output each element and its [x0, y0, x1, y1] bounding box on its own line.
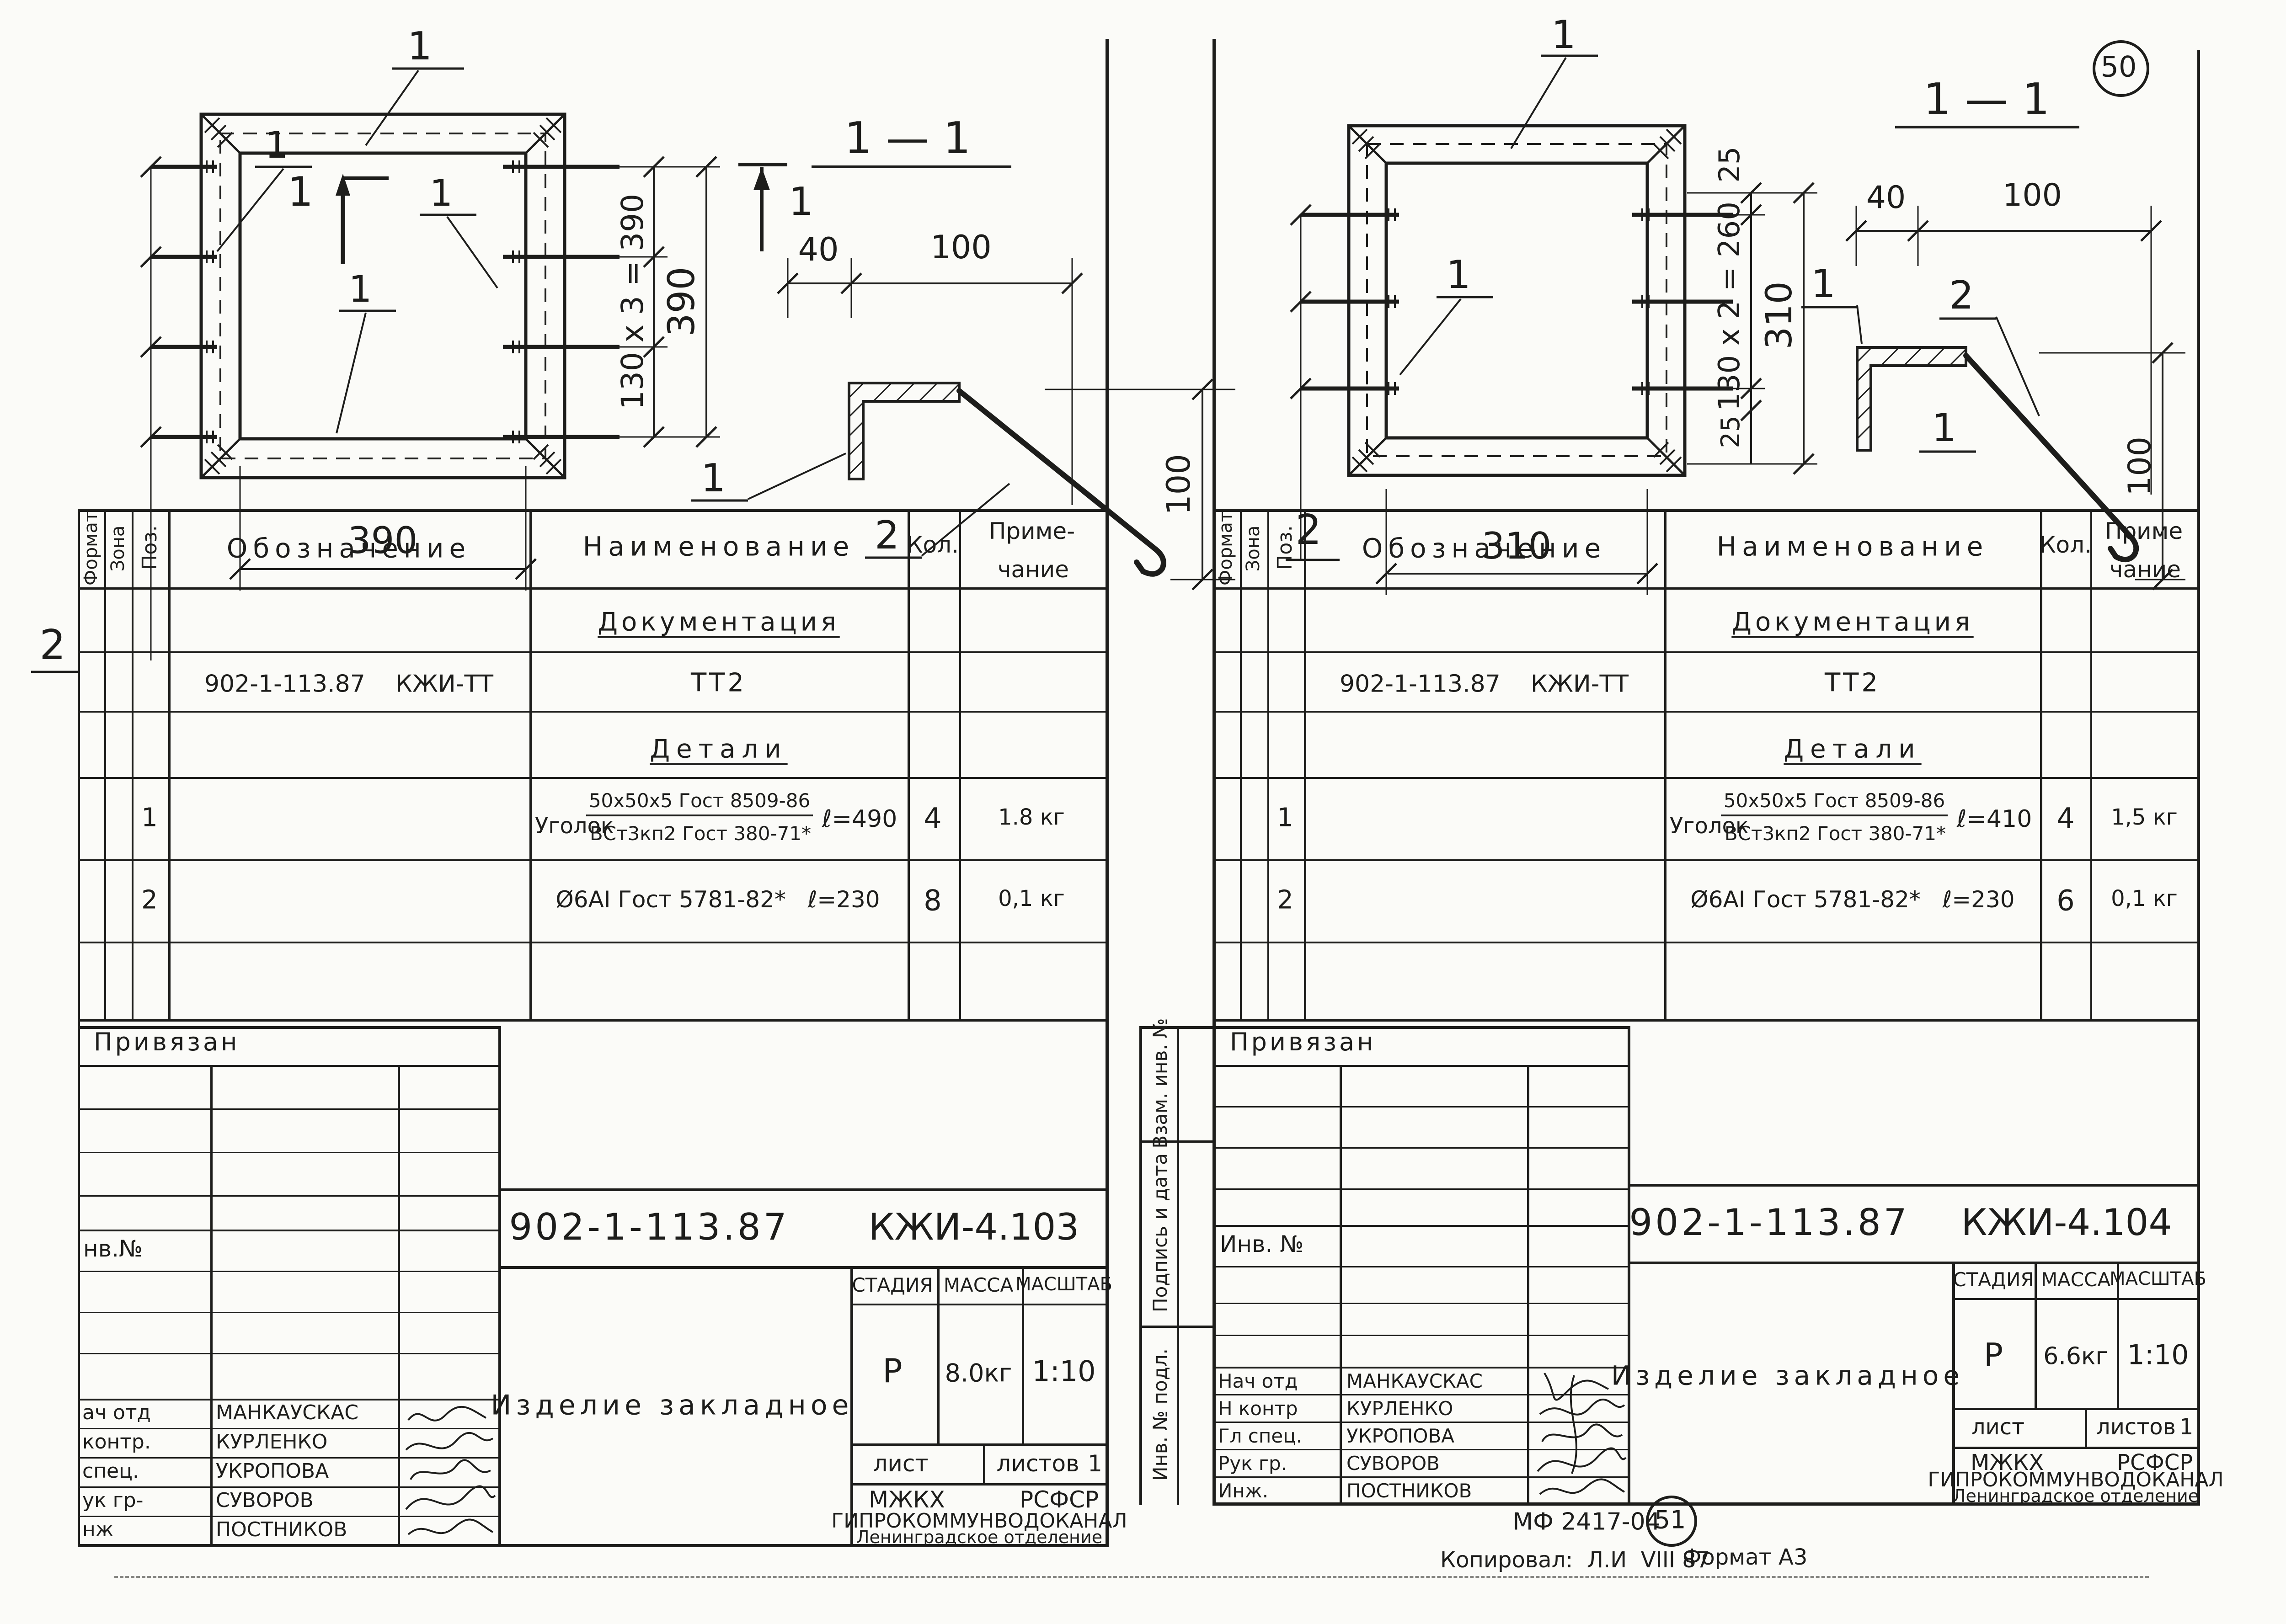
- format-note: Формат А3: [1682, 1546, 1807, 1569]
- stamp-name: МАНКАУСКАС: [1346, 1371, 1483, 1391]
- fraction-bar: [1721, 815, 1948, 816]
- col-header-pos: Поз.: [1275, 525, 1296, 570]
- pos-label: 1: [430, 172, 453, 214]
- stamp-line: [78, 1312, 501, 1313]
- sheet-number: 50: [2101, 52, 2137, 81]
- mass-header: МАССА: [2041, 1270, 2110, 1290]
- titleblock-line: [1628, 1262, 2200, 1264]
- col-header-format: Формат: [81, 511, 101, 586]
- table-line: [1664, 509, 1666, 1021]
- microfilm-code: МФ 2417-04: [1512, 1510, 1660, 1535]
- dim-pitch: 130 x 3 = 390: [615, 194, 650, 410]
- item-pos: 2: [1277, 887, 1293, 914]
- stamp-name: ПОСТНИКОВ: [1346, 1481, 1472, 1501]
- sidebar-line: [1139, 1026, 1142, 1505]
- section-details: Детали: [650, 736, 787, 763]
- titleblock-line: [1952, 1408, 2200, 1410]
- pos-label: 1: [1551, 12, 1576, 58]
- titleblock-line: [1952, 1447, 2200, 1449]
- table-line: [132, 509, 134, 1021]
- stamp-role: Инж.: [1218, 1481, 1268, 1501]
- scale-header: МАСШТАБ: [1015, 1275, 1112, 1294]
- item-length: ℓ=410: [1957, 807, 2032, 832]
- dim-100: 100: [2003, 177, 2062, 213]
- item-pos: 1: [1277, 805, 1293, 832]
- stamp-role: ук гр-: [82, 1490, 144, 1511]
- sheets-label: листов: [2096, 1416, 2176, 1438]
- table-line: [2090, 509, 2092, 1021]
- table-line: [1267, 509, 1269, 1021]
- sheets-count: 1: [1088, 1452, 1102, 1476]
- table-line: [104, 509, 106, 1021]
- stamp-line: [1212, 1266, 1628, 1267]
- anchor-rod: [959, 391, 1164, 574]
- pos-label: 1: [407, 24, 432, 69]
- stamp-line: [1212, 1065, 1628, 1067]
- angle-profile: [1857, 347, 1966, 450]
- stamp-name: КУРЛЕНКО: [216, 1432, 327, 1453]
- pos-label: 2: [875, 513, 899, 558]
- dim-height: 100: [2122, 437, 2158, 496]
- stamp-line: [78, 1195, 501, 1197]
- stamp-name: ПОСТНИКОВ: [216, 1519, 347, 1540]
- stamp-privyazan: Привязан: [1230, 1029, 1376, 1055]
- table-line: [1212, 587, 2200, 590]
- stamp-line: [1527, 1065, 1529, 1505]
- doc-number: 902-1-113.87: [1629, 1203, 1909, 1242]
- table-line: [168, 509, 171, 1021]
- doc-designation: 902-1-113.87 КЖИ-ТТ: [204, 672, 493, 697]
- table-line: [1212, 942, 2200, 943]
- sidebar-line: [1177, 1026, 1179, 1505]
- stamp-line: [498, 1026, 501, 1545]
- stamp-line: [1212, 1188, 1628, 1190]
- table-line: [959, 509, 961, 1021]
- stamp-line: [1212, 1303, 1628, 1304]
- dimensions: 130 x 3 = 390 390 390: [141, 157, 720, 660]
- stage-header: СТАДИЯ: [1953, 1270, 2034, 1290]
- stamp-name: МАНКАУСКАС: [216, 1402, 358, 1423]
- item-frac-top: 50x50x5 Гост 8509-86: [1724, 791, 1945, 811]
- org-ministry: МЖКХ: [869, 1488, 945, 1512]
- stage-value: Р: [1984, 1338, 2003, 1372]
- table-line: [1212, 777, 2200, 779]
- section-title: 1 — 1: [1923, 75, 2050, 125]
- stamp-line: [398, 1065, 400, 1545]
- scan-bottom-edge: [114, 1576, 2149, 1578]
- table-line: [78, 942, 1109, 943]
- table-line: [78, 587, 1109, 590]
- item-length: ℓ=490: [822, 807, 897, 832]
- table-line: [1304, 509, 1306, 1021]
- col-header-designation: Обозначение: [1362, 535, 1606, 563]
- stamp-role: Н контр: [1218, 1399, 1298, 1419]
- sheet-label: лист: [1971, 1416, 2024, 1438]
- col-header-zone: Зона: [108, 526, 128, 572]
- item-frac-top: 50x50x5 Гост 8509-86: [589, 791, 810, 811]
- stamp-role: контр.: [82, 1432, 151, 1453]
- item-note: 0,1 кг: [998, 887, 1065, 910]
- stamp-line: [78, 1065, 501, 1067]
- section-documentation: Документация: [1731, 609, 1973, 636]
- doc-designation: 902-1-113.87 КЖИ-ТТ: [1340, 672, 1629, 697]
- col-header-qty: Кол.: [907, 533, 959, 557]
- product-title: Изделие закладное: [491, 1391, 854, 1420]
- scale-header: МАСШТАБ: [2110, 1269, 2206, 1289]
- table-line: [1212, 1019, 2200, 1022]
- item-pos: 2: [141, 887, 158, 914]
- scale-value: 1:10: [1032, 1356, 1095, 1386]
- col-header-name: Наименование: [583, 533, 855, 561]
- table-line: [529, 509, 532, 1021]
- col-header-note: Приме-: [989, 519, 1075, 543]
- col-header-name: Наименование: [1717, 533, 1989, 561]
- item-frac-bottom: ВСт3кп2 Гост 380-71*: [590, 824, 811, 844]
- stamp-name: УКРОПОВА: [1346, 1426, 1454, 1446]
- dim-100: 100: [930, 229, 992, 266]
- stamp-line: [78, 1230, 501, 1231]
- sidebar-label-podpis: Подпись и дата: [1150, 1153, 1170, 1312]
- item-name: Ø6АI Гост 5781-82* ℓ=230: [1690, 888, 2014, 912]
- stamp-line: [1340, 1065, 1342, 1505]
- section-documentation: Документация: [598, 609, 839, 636]
- titleblock-line: [1952, 1298, 2200, 1300]
- dim-40: 40: [798, 231, 839, 268]
- col-header-note: чание: [998, 558, 1069, 582]
- table-line: [1212, 651, 2200, 653]
- stamp-name: УКРОПОВА: [216, 1461, 329, 1482]
- stamp-role: нж: [82, 1519, 113, 1540]
- titleblock-line: [2035, 1262, 2037, 1408]
- doc-code: КЖИ-4.103: [869, 1208, 1079, 1246]
- footer-circle-number: 51: [1655, 1507, 1686, 1533]
- sidebar-label-inv: Инв. № подл.: [1150, 1348, 1170, 1481]
- sheets-label: листов: [996, 1452, 1079, 1476]
- stamp-line: [1212, 1147, 1628, 1149]
- scanned-drawing-page: 130 x 3 = 390 390 390 1 1 1 1: [0, 0, 2286, 1624]
- stamp-role: Гл спец.: [1218, 1426, 1302, 1446]
- org-branch: Ленинградское отделение: [856, 1528, 1102, 1547]
- item-note: 1.8 кг: [998, 806, 1065, 829]
- dim-height: 100: [1160, 454, 1197, 515]
- item-qty: 8: [924, 885, 941, 915]
- stage-header: СТАДИЯ: [852, 1275, 933, 1295]
- dim-25-bottom: 25: [1716, 415, 1746, 448]
- pos-label: 1: [265, 124, 288, 166]
- item-frac-bottom: ВСт3кп2 Гост 380-71*: [1725, 824, 1946, 844]
- anchors: [1301, 208, 1733, 395]
- item-note: 0,1 кг: [2111, 887, 2178, 910]
- table-line: [2040, 509, 2042, 1021]
- item-qty: 4: [2056, 803, 2074, 833]
- pos-label: 1: [701, 456, 726, 501]
- col-header-format: Формат: [1216, 511, 1235, 586]
- col-header-pos: Поз.: [139, 525, 160, 570]
- titleblock-line: [937, 1266, 940, 1443]
- section-title: 1 — 1: [844, 113, 971, 164]
- stamp-line: [78, 1152, 501, 1153]
- stamp-role: Рук гр.: [1218, 1454, 1287, 1474]
- col-header-designation: Обозначение: [227, 535, 471, 563]
- dim-40: 40: [1866, 180, 1906, 216]
- sidebar-line: [1139, 1326, 1215, 1328]
- org-republic: РСФСР: [1020, 1488, 1099, 1512]
- col-header-note: Приме: [2105, 519, 2183, 543]
- stamp-privyazan: Привязан: [94, 1029, 240, 1055]
- mass-header: МАССА: [944, 1275, 1013, 1295]
- table-line: [1212, 859, 2200, 861]
- sidebar-label-vzam: Взам. инв. №: [1150, 1018, 1170, 1148]
- col-header-zone: Зона: [1244, 526, 1263, 572]
- stamp-line: [78, 1353, 501, 1354]
- dim-25-top: 25: [1713, 147, 1746, 183]
- stamp-line: [78, 1271, 501, 1272]
- table-line: [78, 651, 1109, 653]
- product-title: Изделие закладное: [1611, 1362, 1964, 1390]
- item-qty: 4: [924, 803, 941, 833]
- stamp-role: ач отд: [82, 1402, 151, 1423]
- pos-label: 1: [1446, 252, 1471, 298]
- table-line: [78, 777, 1109, 779]
- stamp-name: КУРЛЕНКО: [1346, 1399, 1453, 1419]
- table-line: [1240, 509, 1242, 1021]
- item-note: 1,5 кг: [2111, 806, 2178, 829]
- org-branch: Ленинградское отделение: [1953, 1487, 2199, 1506]
- sheets-count: 1: [2179, 1416, 2194, 1438]
- table-line: [78, 711, 1109, 713]
- titleblock-line: [850, 1443, 1109, 1446]
- pos-label: 2: [1949, 273, 1974, 318]
- table-line: [1212, 711, 2200, 713]
- section-cut-label: 1: [288, 168, 313, 215]
- stamp-line: [1212, 1106, 1628, 1108]
- pos-label: 1: [349, 268, 372, 310]
- left-signatures: [401, 1400, 497, 1545]
- stage-value: Р: [882, 1354, 902, 1389]
- item-pos: 1: [141, 805, 158, 832]
- stamp-name: СУВОРОВ: [216, 1490, 314, 1511]
- titleblock-line: [850, 1304, 1109, 1305]
- stamp-line: [78, 1108, 501, 1110]
- item-name: Ø6АI Гост 5781-82* ℓ=230: [555, 888, 880, 912]
- table-line: [78, 509, 1109, 512]
- scale-value: 1:10: [2127, 1341, 2189, 1370]
- pos-label-2: 2: [1295, 506, 1321, 554]
- stamp-line: [210, 1065, 213, 1545]
- mass-value: 6.6кг: [2043, 1344, 2108, 1369]
- stamp-role: Нач отд: [1218, 1371, 1298, 1391]
- stamp-line: [1628, 1026, 1630, 1505]
- mass-value: 8.0кг: [945, 1361, 1012, 1387]
- angle-profile: [849, 383, 959, 479]
- sheet-label: лист: [873, 1452, 928, 1476]
- stamp-inv-no: нв.№: [83, 1237, 143, 1261]
- dim-pitch: 130 x 2 = 260: [1713, 202, 1747, 411]
- fraction-bar: [586, 815, 813, 816]
- titleblock-line: [850, 1483, 1109, 1486]
- pos-label: 1: [1811, 261, 1836, 307]
- titleblock-line: [983, 1443, 985, 1483]
- stamp-line: [1212, 1335, 1628, 1336]
- col-header-qty: Кол.: [2040, 533, 2092, 557]
- stamp-name: СУВОРОВ: [1346, 1454, 1440, 1474]
- section-pos-labels: 1 2: [1801, 261, 2039, 416]
- titleblock-line: [498, 1266, 1109, 1269]
- doc-number: 902-1-113.87: [509, 1208, 789, 1246]
- stamp-line: [1212, 1225, 1628, 1227]
- titleblock-line: [2085, 1408, 2087, 1447]
- titleblock-line: [498, 1188, 1109, 1191]
- table-line: [78, 859, 1109, 861]
- pos-label-2: 2: [39, 621, 65, 669]
- table-line: [1212, 509, 2200, 512]
- section-details: Детали: [1784, 736, 1921, 763]
- table-line: [78, 1019, 1109, 1022]
- table-line: [908, 509, 910, 1021]
- doc-name: ТТ2: [691, 670, 747, 697]
- stamp-role: спец.: [82, 1461, 139, 1482]
- doc-code: КЖИ-4.104: [1961, 1203, 2172, 1242]
- stamp-inv-no: Инв. №: [1220, 1232, 1303, 1257]
- doc-name: ТТ2: [1825, 670, 1880, 697]
- copied-by: Копировал: Л.И VIII 87: [1440, 1549, 1710, 1571]
- item-qty: 6: [2056, 885, 2074, 915]
- titleblock-line: [1628, 1184, 2200, 1187]
- col-header-note: чание: [2110, 558, 2181, 582]
